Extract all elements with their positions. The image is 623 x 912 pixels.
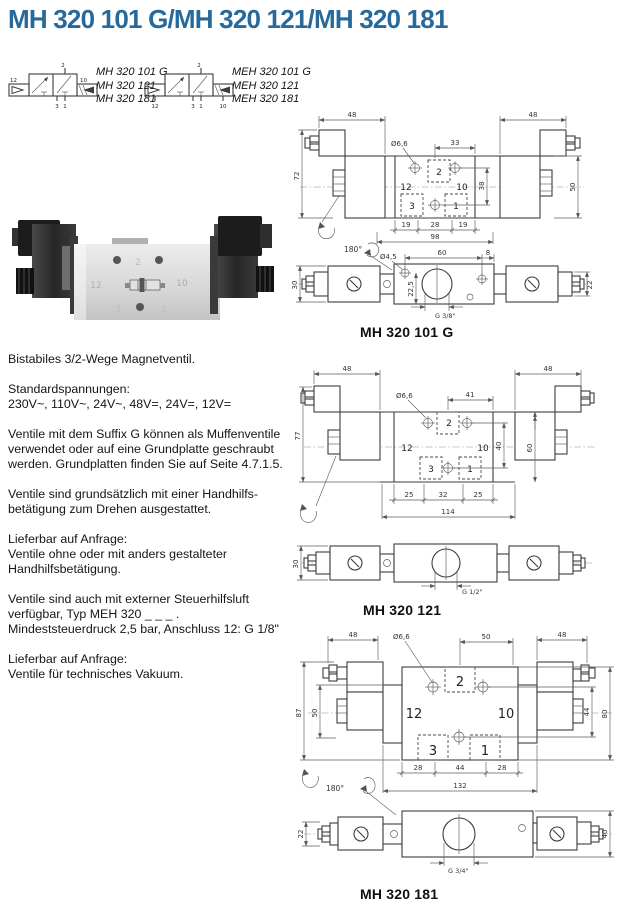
dim-60: 60 — [526, 444, 534, 453]
dim-30: 30 — [292, 560, 300, 569]
dim-8: 8 — [486, 249, 490, 257]
dim-28-right: 28 — [498, 764, 507, 772]
symbol-port-1: 1 — [199, 104, 203, 110]
rotation-180: 180° — [344, 245, 362, 254]
dim-22: 22 — [297, 830, 305, 839]
description-paragraph: Lieferbar auf Anfrage: Ventile ohne oder… — [8, 532, 296, 577]
datasheet-page: MH 320 101 G/MH 320 121/MH 320 181 12 2 … — [0, 0, 623, 912]
top-view: 2 12 10 3 1 — [308, 662, 614, 760]
description-paragraph: Ventile mit dem Suffix G können als Muff… — [8, 427, 296, 472]
symbol-port-2: 2 — [61, 63, 65, 69]
thread-size: G 3/8" — [435, 312, 456, 320]
port-label-1: 1 — [453, 202, 459, 212]
drawing-caption: MH 320 101 G — [360, 324, 453, 340]
photo-port-10: 10 — [176, 279, 188, 289]
dim-48-right: 48 — [529, 111, 538, 119]
thread-size: G 1/2" — [462, 588, 483, 596]
dim-87: 87 — [295, 709, 303, 718]
dim-28-left: 28 — [414, 764, 423, 772]
port-label-2: 2 — [456, 675, 464, 690]
valve-symbol-body — [145, 68, 233, 101]
dim-22: 22 — [586, 281, 594, 290]
port-label-2: 2 — [436, 168, 442, 178]
symbol-port-12: 12 — [10, 78, 17, 84]
valve-symbol-meh: 12 2 3 1 10 — [144, 62, 236, 112]
dim-38: 38 — [478, 182, 486, 191]
port-label-1: 1 — [481, 744, 489, 759]
symbol-port-1: 1 — [63, 104, 67, 110]
rotation-180: 180° — [326, 784, 344, 793]
dim-98: 98 — [431, 233, 440, 241]
meh-variant-list: MEH 320 101 G MEH 320 121 MEH 320 181 — [232, 66, 311, 107]
thread-size: G 3/4" — [448, 867, 469, 875]
bottom-view — [304, 811, 614, 857]
description-paragraph: Bistabiles 3/2-Wege Magnetventil. — [8, 352, 296, 367]
port-label-12: 12 — [401, 444, 412, 454]
bottom-view — [302, 544, 592, 582]
variant-label: MEH 320 101 G — [232, 66, 311, 80]
dim-132: 132 — [453, 782, 466, 790]
dim-32: 32 — [439, 491, 448, 499]
dim-77: 77 — [294, 432, 302, 441]
dim-40: 40 — [495, 442, 503, 451]
variant-label: MEH 320 121 — [232, 80, 311, 94]
port-label-10: 10 — [498, 707, 515, 722]
photo-port-3: 3 — [115, 305, 121, 315]
dim-50-top: 50 — [482, 633, 491, 641]
port-label-10: 10 — [477, 444, 489, 454]
description-block: Bistabiles 3/2-Wege Magnetventil. Standa… — [8, 352, 296, 697]
port-label-3: 3 — [428, 465, 434, 475]
dim-hole-66: Ø6,6 — [396, 392, 413, 400]
dim-80: 80 — [601, 710, 609, 719]
port-label-2: 2 — [446, 419, 452, 429]
product-photo: 2 12 10 3 1 — [12, 208, 278, 328]
variant-label: MEH 320 181 — [232, 93, 311, 107]
valve-body: 2 12 10 3 1 — [74, 238, 220, 320]
dim-50: 50 — [569, 183, 577, 192]
symbol-port-3: 3 — [55, 104, 59, 110]
dim-41: 41 — [466, 391, 475, 399]
dim-72: 72 — [293, 172, 301, 181]
drawing-caption: MH 320 121 — [363, 602, 441, 618]
page-title: MH 320 101 G/MH 320 121/MH 320 181 — [8, 4, 448, 35]
symbol-port-3: 3 — [191, 104, 195, 110]
top-view: 2 12 10 3 1 — [301, 386, 597, 482]
symbol-port-12: 12 — [152, 104, 159, 110]
dim-48-left: 48 — [343, 365, 352, 373]
bottom-view — [298, 264, 586, 304]
technical-drawing-mh320101g: 2 12 10 3 1 48 48 72 50 Ø6,6 33 3 — [292, 108, 623, 345]
dim-50-left: 50 — [311, 709, 319, 718]
port-label-3: 3 — [429, 744, 437, 759]
port-label-3: 3 — [409, 202, 415, 212]
dim-19-left: 19 — [402, 221, 411, 229]
dim-28: 28 — [431, 221, 440, 229]
description-paragraph: Ventile sind auch mit externer Steuerhil… — [8, 592, 296, 637]
dim-48-left: 48 — [349, 631, 358, 639]
dim-hole-66: Ø6,6 — [393, 633, 410, 641]
symbol-port-10: 10 — [80, 78, 87, 84]
port-label-10: 10 — [456, 183, 468, 193]
dim-25-right: 25 — [474, 491, 483, 499]
drawing-caption: MH 320 181 — [360, 886, 438, 902]
dim-48-right: 48 — [544, 365, 553, 373]
description-paragraph: Ventile sind grundsätzlich mit einer Han… — [8, 487, 296, 517]
dim-hole-45: Ø4,5 — [380, 253, 397, 261]
dim-25-left: 25 — [405, 491, 414, 499]
port-label-1: 1 — [467, 465, 473, 475]
photo-port-2: 2 — [135, 258, 141, 268]
port-label-12: 12 — [400, 183, 411, 193]
valve-symbol-mh: 12 2 10 3 1 — [8, 62, 100, 112]
technical-drawing-mh320121: 2 12 10 3 1 48 48 77 Ø6,6 41 40 60 — [292, 360, 623, 610]
dim-60: 60 — [438, 249, 447, 257]
photo-port-1: 1 — [161, 305, 167, 315]
brand-logo — [125, 278, 165, 292]
valve-symbol-body — [9, 68, 97, 101]
symbol-port-10: 10 — [220, 104, 227, 110]
dim-33: 33 — [451, 139, 460, 147]
description-paragraph: Lieferbar auf Anfrage: Ventile für techn… — [8, 652, 296, 682]
left-solenoid — [12, 220, 78, 314]
dim-hole-66: Ø6,6 — [391, 140, 408, 148]
port-label-12: 12 — [406, 707, 423, 722]
symbol-port-2: 2 — [197, 63, 201, 69]
dim-30: 30 — [291, 281, 299, 290]
dim-114: 114 — [441, 508, 455, 516]
dim-19-right: 19 — [459, 221, 468, 229]
photo-port-12: 12 — [90, 281, 101, 291]
dim-44-bottom: 44 — [456, 764, 465, 772]
technical-drawing-mh320181: 2 12 10 3 1 48 Ø6,6 50 48 87 50 4 — [292, 625, 623, 905]
dim-225: 22,5 — [407, 281, 415, 297]
description-paragraph: Standardspannungen: 230V~, 110V~, 24V~, … — [8, 382, 296, 412]
dim-48-left: 48 — [348, 111, 357, 119]
dim-44: 44 — [583, 707, 591, 716]
dim-40: 40 — [601, 830, 609, 839]
dim-48-right: 48 — [558, 631, 567, 639]
